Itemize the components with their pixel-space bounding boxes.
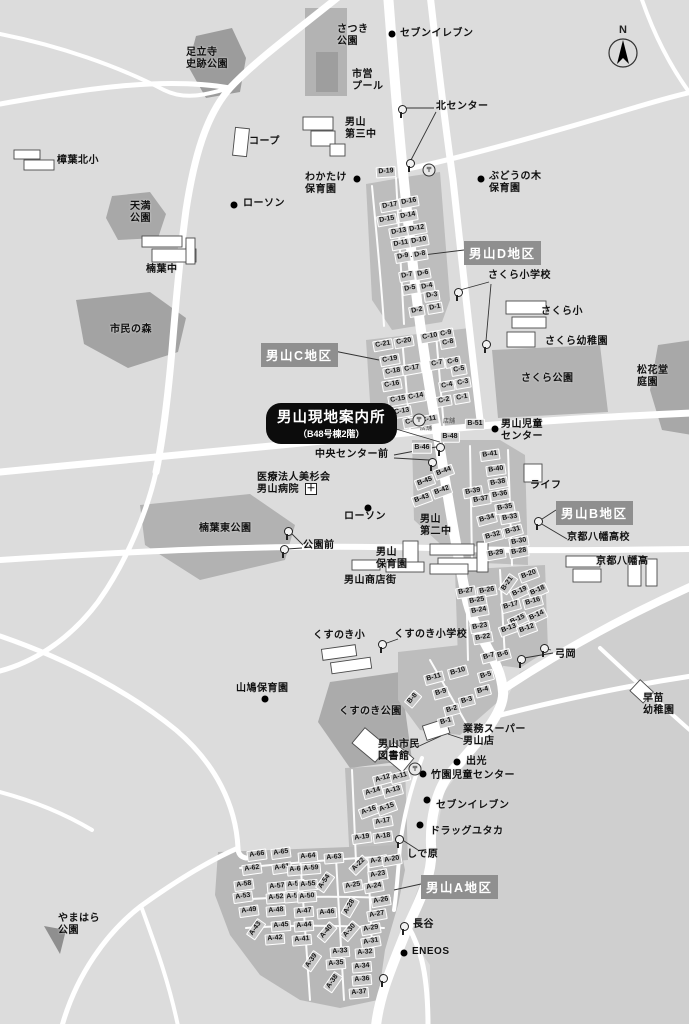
- block-A-35: A-35: [325, 958, 346, 970]
- place-label: 男山児童 センター: [501, 419, 543, 443]
- place-label: 樟葉北小: [57, 155, 99, 167]
- place-label: さくら小: [541, 306, 583, 318]
- place-label: 店舗: [420, 426, 432, 433]
- district-badge: 男山D地区: [464, 241, 541, 265]
- site-info-subtitle: （B48号棟2階）: [277, 427, 386, 440]
- place-label: 男山商店街: [344, 575, 397, 587]
- block-A-34: A-34: [351, 961, 372, 973]
- place-label: セブンイレブン: [436, 800, 510, 812]
- place-label: 男山 第三中: [345, 117, 377, 141]
- block-A-64: A-64: [297, 851, 318, 863]
- post-office-icon: 〒: [409, 763, 422, 776]
- poi-dot: [262, 696, 269, 703]
- place-label: 中央センター前: [315, 449, 389, 461]
- block-B-48: B-48: [440, 432, 460, 443]
- park-kuzuha-higashi: [140, 494, 295, 580]
- block-A-48: A-48: [265, 905, 286, 917]
- post-office-icon: 〒: [413, 414, 426, 427]
- block-A-47: A-47: [293, 906, 314, 918]
- place-label: 市民の森: [110, 324, 152, 336]
- block-A-32: A-32: [354, 947, 375, 959]
- hospital-cross-icon: ＋: [305, 483, 317, 495]
- place-label: ぶどうの木 保育園: [489, 171, 542, 195]
- place-label: 山鳩保育園: [236, 683, 289, 695]
- place-label: 松花堂 庭園: [637, 365, 669, 389]
- place-label: ENEOS: [412, 946, 450, 958]
- place-label: 楠葉東公園: [199, 523, 252, 535]
- place-label: 竹園児童センター: [431, 770, 515, 782]
- block-A-36: A-36: [351, 974, 372, 986]
- block-A-42: A-42: [264, 933, 285, 945]
- site-info-badge: 男山現地案内所 （B48号棟2階）: [266, 403, 397, 444]
- block-A-50: A-50: [296, 891, 317, 903]
- poi-dot: [417, 822, 424, 829]
- place-label: やまはら 公園: [58, 913, 100, 937]
- post-office-icon: 〒: [423, 164, 436, 177]
- block-D-19: D-19: [376, 166, 397, 178]
- poi-dot: [424, 797, 431, 804]
- compass-north-label: N: [600, 24, 646, 36]
- place-label: 長谷: [413, 919, 434, 931]
- place-label: 男山 保育園: [376, 547, 408, 571]
- poi-dot: [454, 759, 461, 766]
- block-A-37: A-37: [348, 987, 369, 999]
- block-A-33: A-33: [329, 946, 350, 958]
- place-label: 楠葉中: [146, 264, 178, 276]
- place-label: くすのき公園: [339, 706, 402, 718]
- place-label: さくら公園: [521, 373, 574, 385]
- block-B-51: B-51: [465, 419, 485, 430]
- place-label: 弓岡: [555, 649, 576, 661]
- place-label: 市営 プール: [352, 69, 384, 93]
- poi-dot: [401, 950, 408, 957]
- map-canvas: N 男山現地案内所 （B48号棟2階） さつき 公園セブンイレブン市営 プール足…: [0, 0, 689, 1024]
- place-label: 出光: [466, 756, 487, 768]
- place-label: さつき 公園: [337, 24, 369, 48]
- pool-building: [316, 52, 338, 92]
- place-label: コープ: [249, 136, 280, 148]
- place-label: さくら小学校: [488, 270, 551, 282]
- place-label: さくら幼稚園: [545, 336, 608, 348]
- poi-dot: [478, 176, 485, 183]
- compass-icon: [606, 36, 640, 70]
- block-A-45: A-45: [270, 920, 291, 932]
- place-label: 男山市民 図書館: [378, 739, 420, 763]
- place-label: 公園前: [303, 540, 335, 552]
- place-label: ライフ: [530, 480, 562, 492]
- place-label: 医療法人美杉会 男山病院: [257, 472, 331, 496]
- place-label: 男山 第二中: [420, 514, 452, 538]
- site-info-title: 男山現地案内所: [277, 406, 386, 427]
- block-A-63: A-63: [323, 852, 344, 864]
- poi-dot: [492, 426, 499, 433]
- place-label: ドラッグユタカ: [430, 826, 504, 838]
- place-label: くすのき小: [313, 630, 365, 642]
- place-label: 早苗 幼稚園: [643, 693, 675, 717]
- place-label: 足立寺 史跡公園: [186, 47, 228, 71]
- district-badge: 男山C地区: [261, 343, 338, 367]
- poi-dot: [231, 202, 238, 209]
- place-label: ローソン: [344, 511, 386, 523]
- poi-dot: [365, 505, 372, 512]
- place-label: 業務スーパー 男山店: [463, 724, 526, 748]
- place-label: 京都八幡高校: [567, 532, 630, 544]
- poi-dot: [389, 31, 396, 38]
- place-label: 北センター: [436, 101, 489, 113]
- block-B-46: B-46: [412, 443, 432, 454]
- place-label: くすのき小学校: [394, 629, 467, 641]
- block-A-59: A-59: [300, 863, 321, 875]
- block-A-44: A-44: [293, 920, 314, 932]
- block-A-46: A-46: [316, 907, 337, 919]
- poi-dot: [354, 176, 361, 183]
- district-badge: 男山A地区: [421, 875, 498, 899]
- district-badge: 男山B地区: [556, 501, 633, 525]
- place-label: ローソン: [243, 198, 285, 210]
- place-label: 京都八幡高: [596, 556, 649, 568]
- place-label: セブンイレブン: [400, 28, 474, 40]
- place-label: 天満 公園: [130, 201, 151, 225]
- place-label: しで原: [407, 849, 438, 861]
- block-D-3: D-3: [423, 290, 441, 303]
- place-label: 店舗: [443, 419, 455, 426]
- compass: N: [600, 24, 646, 75]
- place-label: わかたけ 保育園: [305, 172, 347, 196]
- block-A-41: A-41: [291, 934, 312, 946]
